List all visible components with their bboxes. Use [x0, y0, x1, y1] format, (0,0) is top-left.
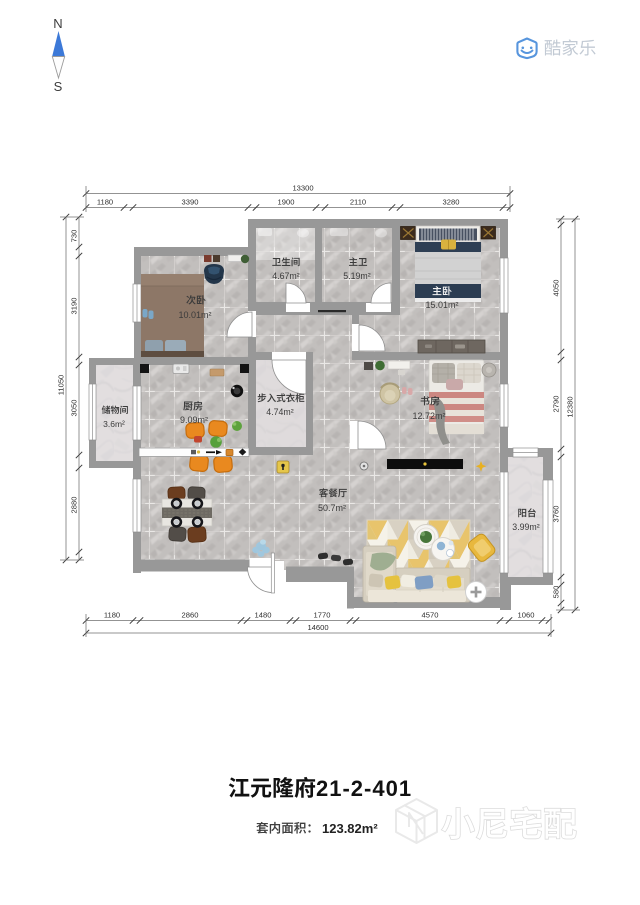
svg-text:1060: 1060 — [518, 611, 535, 620]
svg-text:13300: 13300 — [292, 184, 313, 193]
svg-text:21-2-401: 21-2-401 — [316, 776, 412, 801]
svg-text:2790: 2790 — [552, 396, 561, 413]
svg-text:1770: 1770 — [314, 611, 331, 620]
svg-text:12.72m²: 12.72m² — [412, 411, 445, 421]
svg-text:580: 580 — [552, 586, 561, 599]
svg-text:14600: 14600 — [307, 623, 328, 632]
svg-text:2880: 2880 — [70, 497, 79, 514]
svg-text:50.7m²: 50.7m² — [318, 503, 346, 513]
svg-text:2860: 2860 — [182, 611, 199, 620]
svg-text:12380: 12380 — [566, 396, 575, 417]
svg-text:4.67m²: 4.67m² — [272, 271, 299, 281]
svg-text:3760: 3760 — [552, 506, 561, 523]
svg-text:4570: 4570 — [422, 611, 439, 620]
svg-text:3050: 3050 — [70, 400, 79, 417]
svg-text:123.82m²: 123.82m² — [322, 821, 378, 836]
svg-text:1480: 1480 — [255, 611, 272, 620]
svg-text:4.74m²: 4.74m² — [266, 407, 293, 417]
svg-text:10.01m²: 10.01m² — [178, 310, 211, 320]
svg-text:730: 730 — [70, 230, 79, 243]
svg-text:3190: 3190 — [70, 298, 79, 315]
svg-text:3.99m²: 3.99m² — [512, 522, 539, 532]
svg-text:3.6m²: 3.6m² — [103, 419, 125, 429]
svg-text:3390: 3390 — [182, 198, 199, 207]
svg-text:11050: 11050 — [57, 375, 66, 396]
svg-text:N: N — [53, 16, 62, 31]
svg-text:3280: 3280 — [443, 198, 460, 207]
svg-text:S: S — [54, 79, 63, 94]
svg-text:15.01m²: 15.01m² — [425, 300, 458, 310]
svg-text:1180: 1180 — [97, 198, 113, 207]
svg-text:4050: 4050 — [552, 280, 561, 297]
svg-text:9.09m²: 9.09m² — [180, 415, 208, 425]
svg-text:5.19m²: 5.19m² — [343, 271, 370, 281]
svg-text:1180: 1180 — [104, 611, 120, 620]
svg-text:1900: 1900 — [278, 198, 295, 207]
svg-text:2110: 2110 — [350, 198, 366, 207]
